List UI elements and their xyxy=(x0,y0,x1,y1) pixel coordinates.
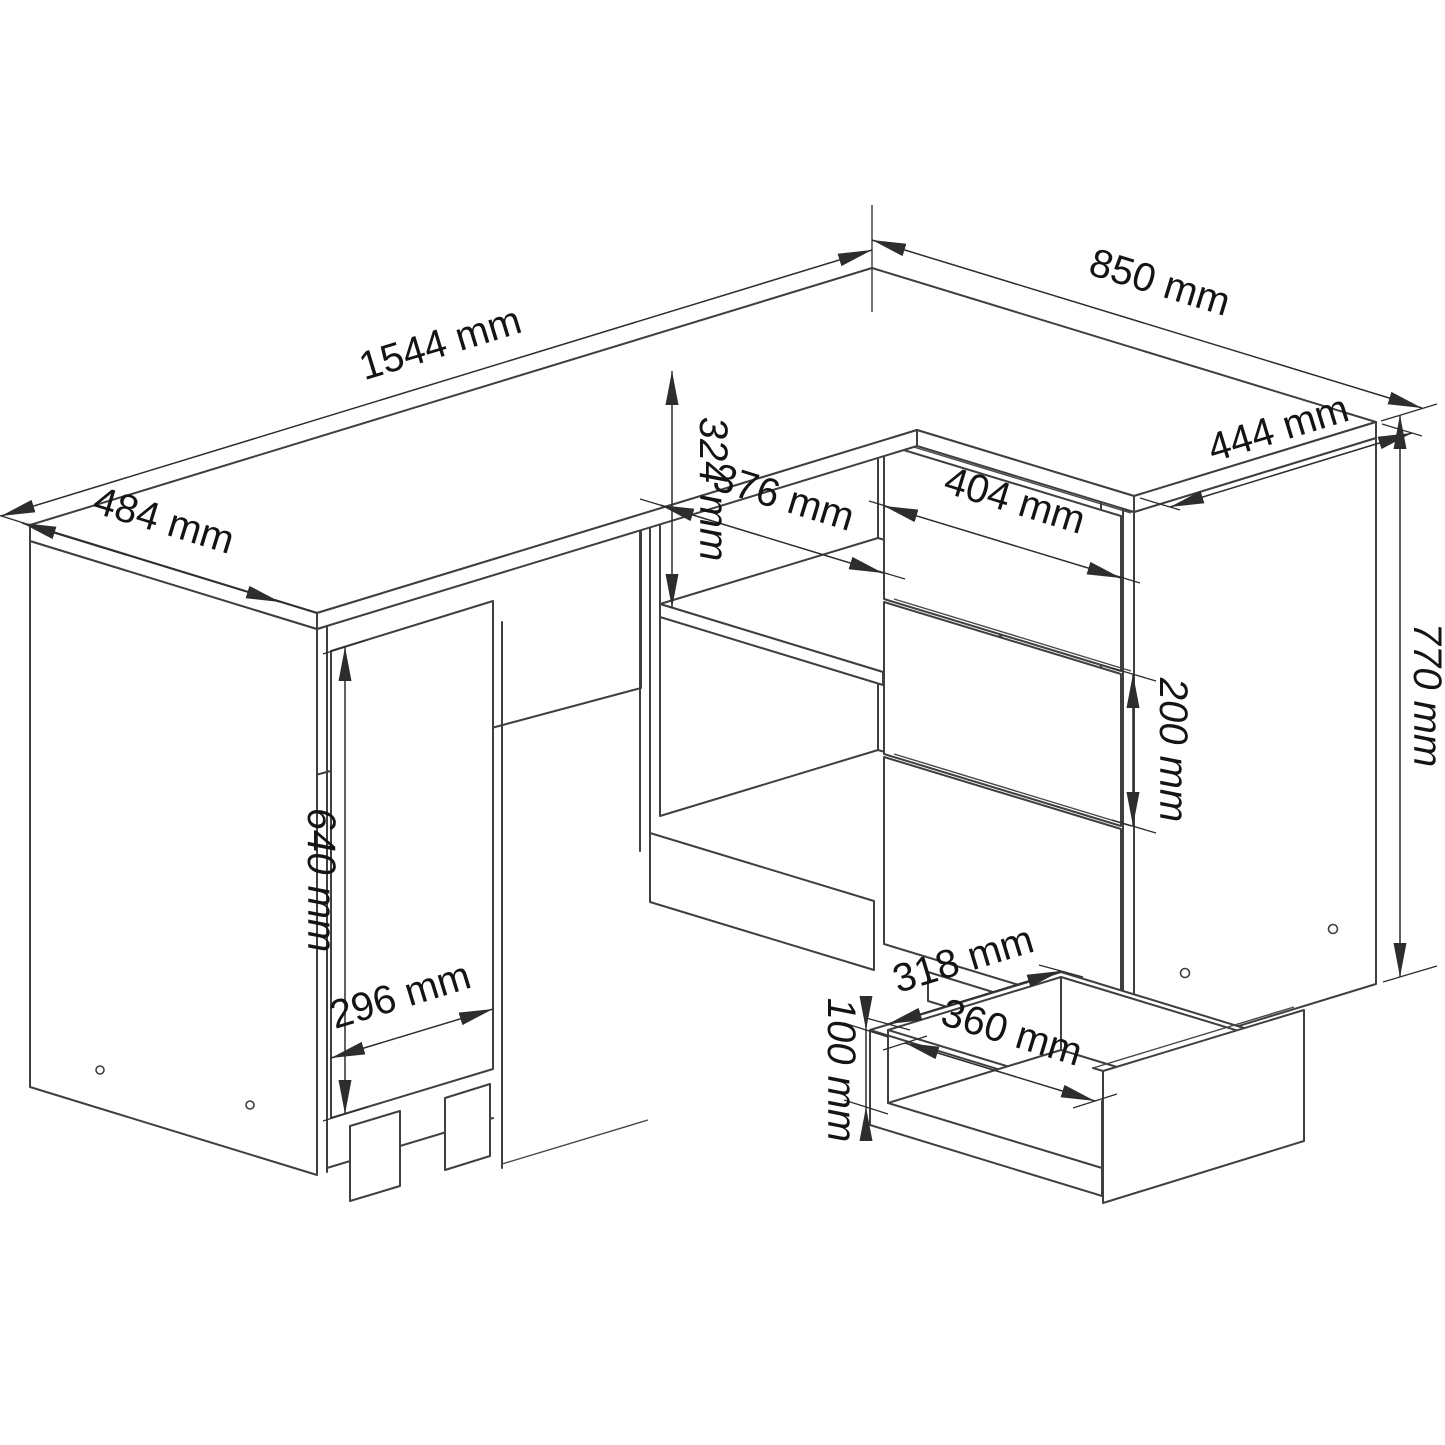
desk-technical-drawing: 1544 mm 850 mm 444 mm 484 mm 640 mm 296 … xyxy=(0,0,1445,1445)
dim-label-desk-length: 1544 mm xyxy=(354,298,526,389)
cabinet-foot-left xyxy=(350,1111,400,1201)
dim-label-drawer-inner-height: 100 mm xyxy=(819,998,863,1143)
dim-label-shelf-height: 324 mm xyxy=(691,417,735,562)
cabinet-door xyxy=(331,601,493,1118)
dim-label-total-height: 770 mm xyxy=(1405,623,1445,768)
dim-label-drawer-front-height: 200 mm xyxy=(1151,677,1195,823)
compartment-plinth xyxy=(650,833,874,970)
left-side-panel xyxy=(30,541,317,1175)
dim-label-door-height: 640 mm xyxy=(299,808,343,953)
dimension-drawer-inner-height: 100 mm xyxy=(819,996,888,1142)
dimension-total-height: 770 mm xyxy=(1383,415,1445,982)
desk-technical-drawing-page: 1544 mm 850 mm 444 mm 484 mm 640 mm 296 … xyxy=(0,0,1445,1445)
cabinet-foot-right xyxy=(445,1084,490,1170)
dimension-drawer-front-height: 200 mm xyxy=(1112,668,1195,833)
